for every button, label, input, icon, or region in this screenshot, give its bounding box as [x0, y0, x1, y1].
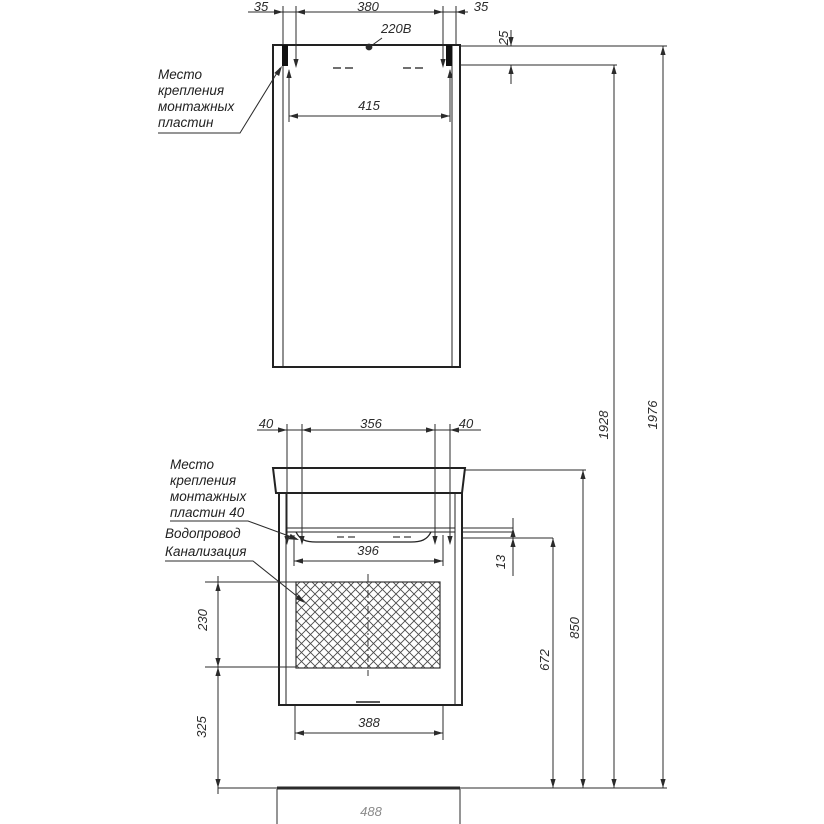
mirror-mounting-label: Место крепления монтажных пластин [158, 67, 234, 131]
utilities-label: Водопровод Канализация [165, 525, 246, 560]
mounting-plate-left [282, 45, 288, 66]
dim-total-height: 1976 [646, 393, 660, 437]
dim-basin-inner-width: 396 [346, 544, 390, 558]
label-line: пластин [158, 115, 234, 131]
dim-low-center: 356 [349, 417, 393, 431]
utilities-hatch-area [296, 574, 440, 676]
mounting-plate-right [446, 45, 452, 66]
power-outlet-dot [366, 44, 373, 51]
dim-cabinet-bottom-width: 388 [347, 716, 391, 730]
label-line: Место [170, 457, 246, 473]
label-line: крепления [170, 473, 246, 489]
label-line: Водопровод [165, 525, 246, 543]
label-line: монтажных [158, 99, 234, 115]
mirror-cabinet [273, 45, 460, 367]
label-line: пластин 40 [170, 505, 246, 521]
installation-drawing: 35 380 35 220В 25 415 40 356 40 396 13 2… [0, 0, 824, 824]
dim-top-left: 35 [239, 0, 283, 14]
dim-below-height: 325 [195, 705, 209, 749]
dim-base-width: 488 [349, 805, 393, 819]
dim-mirror-inner-width: 415 [347, 99, 391, 113]
dim-offset-top: 25 [497, 16, 511, 60]
label-line: Канализация [165, 543, 246, 561]
label-line: Место [158, 67, 234, 83]
dim-gap: 13 [494, 540, 508, 584]
label-line: крепления [158, 83, 234, 99]
dim-cabinet-height: 672 [538, 638, 552, 682]
drawing-linework [0, 0, 824, 824]
label-line: монтажных [170, 489, 246, 505]
dim-low-right: 40 [444, 417, 488, 431]
power-outlet-label: 220В [381, 22, 411, 36]
dim-low-left: 40 [244, 417, 288, 431]
vanity-mounting-label: Место крепления монтажных пластин 40 [170, 457, 246, 521]
dim-top-center: 380 [346, 0, 390, 14]
dim-top-right: 35 [459, 0, 503, 14]
dim-mirror-bottom-height: 1928 [597, 403, 611, 447]
dim-hatch-height: 230 [196, 598, 210, 642]
dim-basin-height: 850 [568, 606, 582, 650]
floor-line [218, 788, 667, 824]
